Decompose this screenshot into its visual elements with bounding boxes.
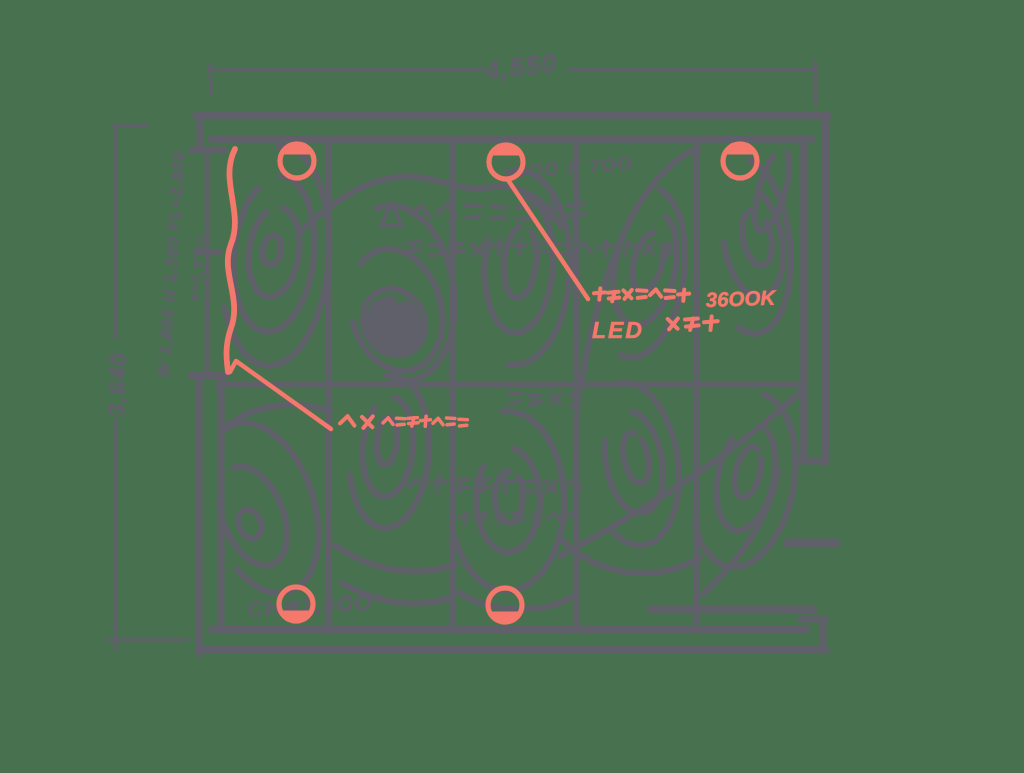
- svg-text:36OOK: 36OOK: [705, 287, 777, 312]
- svg-text:3,640: 3,640: [103, 351, 131, 417]
- svg-text:LED: LED: [592, 317, 644, 343]
- svg-text:W 1,800 H 1,300 FL+2,800: W 1,800 H 1,300 FL+2,800: [155, 149, 189, 378]
- svg-text:4,550: 4,550: [482, 47, 559, 86]
